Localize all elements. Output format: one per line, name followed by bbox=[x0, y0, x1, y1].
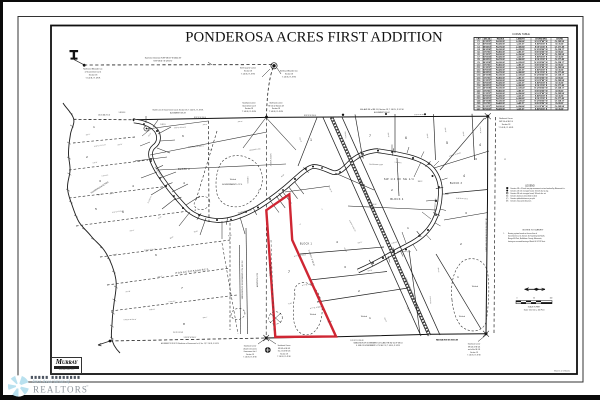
svg-text:T. 140 N., R. 49 W.: T. 140 N., R. 49 W. bbox=[498, 127, 514, 129]
svg-text:L=39.27': L=39.27' bbox=[517, 108, 525, 110]
svg-text:S 45°00'00" E: S 45°00'00" E bbox=[535, 56, 548, 59]
svg-text:PONDEROSA LOOP: PONDEROSA LOOP bbox=[369, 163, 383, 166]
svg-text:331.15': 331.15' bbox=[437, 268, 439, 274]
svg-text:1: 1 bbox=[93, 125, 95, 129]
svg-text:R=460.00': R=460.00' bbox=[496, 102, 505, 105]
svg-text:N 85°02' E 266.15': N 85°02' E 266.15' bbox=[144, 248, 157, 251]
svg-text:120.00': 120.00' bbox=[372, 204, 378, 206]
svg-text:Ch 195.54': Ch 195.54' bbox=[555, 53, 565, 56]
svg-text:R=425.00': R=425.00' bbox=[496, 43, 505, 46]
svg-text:Denotes 5/8 x 24 inch iron pip: Denotes 5/8 x 24 inch iron pipe monument… bbox=[511, 187, 566, 190]
svg-text:N 88° E: N 88° E bbox=[160, 124, 165, 126]
svg-text:82.00': 82.00' bbox=[228, 235, 233, 237]
svg-text:Northwest corner: Northwest corner bbox=[270, 102, 283, 105]
svg-text:DELTA: DELTA bbox=[484, 37, 491, 40]
svg-text:T. 140 N., R. 49 W.: T. 140 N., R. 49 W. bbox=[243, 357, 257, 359]
svg-text:2: 2 bbox=[86, 155, 88, 159]
svg-text:P O N D E R O S A A C R E S: P O N D E R O S A A C R E S bbox=[175, 268, 208, 275]
svg-text:6: 6 bbox=[155, 253, 157, 257]
svg-text:4: 4 bbox=[463, 174, 465, 178]
svg-text:5: 5 bbox=[446, 141, 448, 145]
svg-text:Section 18: Section 18 bbox=[502, 123, 511, 126]
svg-text:24°10'08": 24°10'08" bbox=[483, 87, 492, 90]
svg-text:N 12°30' W: N 12°30' W bbox=[147, 196, 152, 204]
svg-text:Ch 177.48': Ch 177.48' bbox=[555, 45, 565, 48]
svg-text:Section 18: Section 18 bbox=[244, 70, 252, 73]
svg-text:6: 6 bbox=[405, 136, 407, 140]
svg-text:3: 3 bbox=[99, 179, 101, 183]
svg-text:Range 49 West, Bethlehem Count: Range 49 West, Bethlehem County, Minneso… bbox=[508, 237, 542, 240]
svg-text:BLOCK 1: BLOCK 1 bbox=[300, 243, 313, 246]
svg-text:R=460.00': R=460.00' bbox=[496, 89, 505, 92]
svg-text:132.00': 132.00' bbox=[238, 121, 244, 123]
svg-text:Wetland: Wetland bbox=[459, 315, 465, 318]
svg-text:330.02': 330.02' bbox=[207, 149, 213, 151]
svg-text:24°10'08": 24°10'08" bbox=[483, 48, 492, 51]
svg-text:SE 1/4 of Section 18: SE 1/4 of Section 18 bbox=[268, 104, 283, 107]
svg-text:202.17': 202.17' bbox=[112, 254, 118, 257]
svg-text:CURVE TABLE: CURVE TABLE bbox=[512, 32, 530, 36]
svg-text:24°10'08": 24°10'08" bbox=[483, 74, 492, 77]
svg-text:Northeast Corner: Northeast Corner bbox=[499, 117, 513, 120]
svg-text:3: 3 bbox=[465, 211, 467, 215]
svg-text:3: 3 bbox=[344, 265, 346, 269]
svg-text:S 10°37'49" W: S 10°37'49" W bbox=[535, 79, 548, 82]
svg-text:S 89°58' W 1286.65': S 89°58' W 1286.65' bbox=[350, 340, 364, 342]
svg-text:134.15 (M) 271.00: 134.15 (M) 271.00 bbox=[98, 115, 110, 117]
svg-text:T. 140 N., R. 49 W.: T. 140 N., R. 49 W. bbox=[467, 355, 481, 357]
svg-text:Ch 195.54': Ch 195.54' bbox=[555, 79, 565, 82]
svg-text:N 89°58'41" W 1293.72': N 89°58'41" W 1293.72' bbox=[153, 61, 173, 63]
svg-text:60.00': 60.00' bbox=[281, 173, 286, 178]
svg-text:Ch 177.48': Ch 177.48' bbox=[555, 97, 565, 100]
svg-text:BLOCK 4: BLOCK 4 bbox=[390, 198, 404, 201]
svg-text:0: 0 bbox=[517, 298, 518, 300]
svg-text:R=460.00': R=460.00' bbox=[496, 50, 505, 53]
svg-text:165.00': 165.00' bbox=[444, 127, 446, 133]
svg-text:PONDEROSA ACRES FIRST ADDITION: PONDEROSA ACRES FIRST ADDITION bbox=[185, 30, 443, 46]
svg-text:Government Lot 3: Government Lot 3 bbox=[242, 104, 256, 107]
svg-text:S 88°12' E 169.00: S 88°12' E 169.00 bbox=[449, 152, 461, 157]
svg-text:N 84°18' E: N 84°18' E bbox=[169, 301, 176, 304]
svg-text:S 45°00'00" E: S 45°00'00" E bbox=[535, 107, 548, 110]
svg-text:5: 5 bbox=[322, 209, 323, 211]
svg-text:N 12°05'04" W: N 12°05'04" W bbox=[535, 61, 548, 64]
svg-text:having an assumed bearing of N: having an assumed bearing of North 00°01… bbox=[508, 240, 546, 243]
svg-text:Government Lot 4, Section 18,: Government Lot 4, Section 18, Township 1… bbox=[508, 235, 545, 238]
svg-text:S 45°00'00" E: S 45°00'00" E bbox=[535, 69, 548, 72]
svg-text:N 77°31' E 288.20: N 77°31' E 288.20 bbox=[310, 306, 322, 310]
svg-text:3: 3 bbox=[363, 183, 365, 187]
svg-text:Bearing system based on the ea: Bearing system based on the east line of bbox=[508, 232, 538, 235]
svg-text:S 88°40' E: S 88°40' E bbox=[119, 112, 126, 114]
svg-text:3: 3 bbox=[475, 157, 477, 161]
svg-text:Section 18: Section 18 bbox=[245, 107, 253, 110]
svg-text:1: 1 bbox=[310, 138, 312, 142]
svg-text:S 00°05' E: S 00°05' E bbox=[246, 176, 248, 183]
svg-text:N 89°54' W 330.00': N 89°54' W 330.00' bbox=[124, 319, 138, 321]
svg-text:North Quarter Corner: North Quarter Corner bbox=[240, 67, 256, 70]
svg-text:S 10°37'49" W: S 10°37'49" W bbox=[535, 40, 548, 43]
svg-text:MEANDER LINE: MEANDER LINE bbox=[249, 147, 261, 152]
svg-text:ALIGNMENT 660.00': ALIGNMENT 660.00' bbox=[374, 111, 390, 114]
svg-text:EAST LINE OF SW 1/4 OF SE 1/4,: EAST LINE OF SW 1/4 OF SE 1/4, SEC. 18 bbox=[485, 218, 488, 251]
svg-text:N 00°01' E: N 00°01' E bbox=[344, 131, 347, 138]
svg-text:T. 140 N., R. 49 W.: T. 140 N., R. 49 W. bbox=[277, 356, 291, 358]
svg-text:(R): (R) bbox=[506, 201, 509, 203]
svg-text:Northeast Meander Cor.: Northeast Meander Cor. bbox=[280, 70, 299, 73]
svg-text:N 89°58' E 120.11: N 89°58' E 120.11 bbox=[456, 198, 468, 200]
svg-text:S 10°37'49" W: S 10°37'49" W bbox=[535, 105, 548, 108]
svg-text:S 89°58' W 264.11': S 89°58' W 264.11' bbox=[184, 337, 197, 339]
svg-text:Ch 195.54': Ch 195.54' bbox=[555, 40, 565, 43]
svg-text:80.00': 80.00' bbox=[194, 230, 199, 233]
svg-text:R=425.00': R=425.00' bbox=[496, 56, 505, 59]
svg-text:North Line of Government Lot 4: North Line of Government Lot 4, Section … bbox=[153, 109, 204, 112]
svg-text:40th AVE SE of NE 1/4, Section: 40th AVE SE of NE 1/4, Section 18, T. 14… bbox=[360, 108, 404, 111]
svg-text:S 45°00'00" E: S 45°00'00" E bbox=[535, 94, 548, 97]
svg-text:R=425.00': R=425.00' bbox=[496, 69, 505, 72]
svg-text:1.: 1. bbox=[503, 233, 505, 235]
svg-text:134.06': 134.06' bbox=[367, 269, 373, 272]
svg-text:S 45°00'00" E: S 45°00'00" E bbox=[535, 43, 548, 46]
svg-text:Denotes measured distances: Denotes measured distances bbox=[511, 200, 532, 203]
svg-text:Sec. 18 of SE 1/4: Sec. 18 of SE 1/4 bbox=[278, 351, 291, 353]
svg-text:SW 1/4 of SE 1/4: SW 1/4 of SE 1/4 bbox=[278, 348, 290, 350]
svg-text:1: 1 bbox=[457, 275, 459, 279]
svg-text:90°00'00": 90°00'00" bbox=[483, 108, 492, 110]
svg-text:SW 1/4 of SE 1/4: SW 1/4 of SE 1/4 bbox=[499, 121, 513, 123]
svg-text:330.17': 330.17' bbox=[203, 317, 209, 319]
svg-text:T. 140 N., R. 49 W.: T. 140 N., R. 49 W. bbox=[85, 78, 101, 80]
svg-text:AUDITOR'S LOT 2: AUDITOR'S LOT 2 bbox=[256, 273, 259, 287]
svg-text:®: ® bbox=[86, 383, 89, 388]
svg-text:164.27': 164.27' bbox=[203, 124, 209, 126]
svg-text:BURLINGTON NORTHERN RAILROAD: BURLINGTON NORTHERN RAILROAD bbox=[359, 179, 377, 213]
svg-text:R=460.00': R=460.00' bbox=[496, 76, 505, 79]
svg-text:126.71': 126.71' bbox=[357, 242, 363, 245]
svg-text:33': 33' bbox=[504, 159, 507, 161]
svg-text:Section 18: Section 18 bbox=[280, 352, 288, 355]
svg-text:T. 140 N., R. 49 W.: T. 140 N., R. 49 W. bbox=[269, 111, 284, 113]
svg-text:R=425.00': R=425.00' bbox=[496, 107, 505, 110]
svg-text:2: 2 bbox=[358, 289, 360, 293]
svg-text:165.00': 165.00' bbox=[462, 131, 464, 137]
svg-text:RADIUS: RADIUS bbox=[497, 37, 505, 40]
svg-text:S 38°20' W 190.15': S 38°20' W 190.15' bbox=[348, 220, 356, 233]
svg-text:24°10'08": 24°10'08" bbox=[483, 61, 492, 64]
svg-text:S 10°37'49" W: S 10°37'49" W bbox=[535, 92, 548, 95]
svg-text:N 89°58' E 330.00: N 89°58' E 330.00 bbox=[194, 117, 206, 119]
svg-text:Section 18: Section 18 bbox=[470, 351, 478, 354]
svg-text:RAILROAD R/W SECTION LINE: RAILROAD R/W SECTION LINE bbox=[436, 339, 458, 342]
svg-text:5: 5 bbox=[95, 207, 97, 211]
svg-text:Southeast Corner: Southeast Corner bbox=[468, 343, 481, 346]
svg-text:Wetland: Wetland bbox=[230, 178, 236, 181]
svg-text:R=425.00': R=425.00' bbox=[496, 94, 505, 97]
svg-text:N 87°44' E: N 87°44' E bbox=[101, 174, 108, 177]
svg-text:Scale: One Inch = 100 Feet: Scale: One Inch = 100 Feet bbox=[524, 309, 545, 312]
svg-text:REALTORS: REALTORS bbox=[33, 385, 88, 395]
svg-text:Sheet 1 of 1 Sheets: Sheet 1 of 1 Sheets bbox=[554, 370, 570, 373]
svg-text:82.15': 82.15' bbox=[148, 132, 152, 137]
svg-text:208.07': 208.07' bbox=[383, 317, 387, 323]
svg-text:Section 18: Section 18 bbox=[246, 353, 254, 356]
svg-text:Ch 195.54': Ch 195.54' bbox=[555, 66, 565, 69]
svg-text:Wetland: Wetland bbox=[310, 313, 316, 316]
svg-text:(South 1/4 Corner): (South 1/4 Corner) bbox=[243, 347, 257, 350]
svg-text:Government Lot 4: Government Lot 4 bbox=[244, 350, 257, 353]
svg-text:S 89°58' E: S 89°58' E bbox=[391, 241, 398, 245]
svg-text:Ch 177.48': Ch 177.48' bbox=[555, 71, 565, 74]
svg-text:and of the SE 1/4: and of the SE 1/4 bbox=[468, 348, 480, 351]
svg-text:165.00': 165.00' bbox=[426, 133, 428, 139]
svg-text:of Government Lot 4: of Government Lot 4 bbox=[85, 71, 101, 74]
svg-text:66': 66' bbox=[494, 174, 497, 176]
svg-text:BLOCK 2: BLOCK 2 bbox=[178, 169, 190, 171]
svg-text:4: 4 bbox=[300, 224, 301, 226]
svg-text:50: 50 bbox=[533, 298, 535, 300]
svg-text:N 00°01'19" W: N 00°01'19" W bbox=[270, 264, 272, 275]
svg-text:(P): (P) bbox=[506, 198, 509, 200]
svg-text:N 12°05'04" W: N 12°05'04" W bbox=[535, 87, 548, 90]
svg-text:(M): (M) bbox=[506, 195, 509, 197]
svg-text:Ch 177.48': Ch 177.48' bbox=[555, 84, 565, 87]
svg-text:7: 7 bbox=[181, 286, 183, 290]
svg-text:4: 4 bbox=[479, 143, 481, 147]
svg-text:252.12': 252.12' bbox=[130, 230, 136, 233]
svg-text:182.11': 182.11' bbox=[86, 134, 92, 137]
svg-text:SUBDIVISION OF GOVERNMENT LOT: SUBDIVISION OF GOVERNMENT LOT 4, SEC. 18 bbox=[242, 261, 244, 300]
svg-text:75.00': 75.00' bbox=[158, 216, 163, 220]
svg-text:N 89°58' E 264.00: N 89°58' E 264.00 bbox=[304, 115, 316, 117]
svg-text:Ch 195.54': Ch 195.54' bbox=[555, 105, 565, 108]
svg-text:NOTES TO SURVEY: NOTES TO SURVEY bbox=[523, 229, 544, 231]
svg-text:212.15': 212.15' bbox=[117, 144, 123, 147]
svg-text:T. 140 N., R. 49 W.: T. 140 N., R. 49 W. bbox=[241, 74, 256, 76]
svg-text:280.07': 280.07' bbox=[158, 276, 164, 279]
svg-text:S 38° W: S 38° W bbox=[328, 187, 333, 193]
svg-text:R=460.00': R=460.00' bbox=[496, 63, 505, 66]
svg-text:Section 18: Section 18 bbox=[272, 107, 280, 110]
svg-text:Wetland: Wetland bbox=[361, 315, 367, 318]
svg-text:4: 4 bbox=[336, 240, 338, 244]
svg-text:N 88°12' E 212.07': N 88°12' E 212.07' bbox=[94, 144, 107, 148]
svg-text:ALIGNMENT 587.28': ALIGNMENT 587.28' bbox=[170, 112, 186, 115]
svg-text:2: 2 bbox=[391, 188, 393, 192]
svg-text:100: 100 bbox=[550, 298, 553, 300]
svg-text:S 45°00'00" E: S 45°00'00" E bbox=[535, 82, 548, 85]
svg-text:SW 1/4 of SE 1/4: SW 1/4 of SE 1/4 bbox=[468, 346, 480, 348]
svg-text:Ch 177.48': Ch 177.48' bbox=[555, 58, 565, 61]
svg-text:C27: C27 bbox=[477, 108, 481, 110]
svg-text:S 10°37'49" W: S 10°37'49" W bbox=[535, 53, 548, 56]
svg-text:T. 140 N., R. 49 W.: T. 140 N., R. 49 W. bbox=[242, 111, 257, 113]
svg-text:N 12°05'04" W: N 12°05'04" W bbox=[535, 100, 548, 103]
svg-text:Section 18: Section 18 bbox=[285, 73, 293, 76]
svg-text:24°10'08": 24°10'08" bbox=[483, 100, 492, 103]
svg-text:Wetland: Wetland bbox=[472, 285, 478, 288]
svg-text:1: 1 bbox=[407, 226, 409, 230]
svg-text:2: 2 bbox=[460, 242, 462, 246]
svg-text:432.15': 432.15' bbox=[298, 137, 302, 143]
svg-text:217.00': 217.00' bbox=[125, 291, 131, 293]
svg-text:196.00': 196.00' bbox=[93, 162, 99, 165]
svg-text:7: 7 bbox=[288, 270, 290, 274]
svg-text:Section 18: Section 18 bbox=[89, 74, 98, 77]
svg-text:N 89° W: N 89° W bbox=[149, 309, 155, 311]
svg-text:Southeast Corner: Southeast Corner bbox=[244, 345, 257, 348]
svg-text:ALIGNMENT S 88°40' W Subdiv: ALIGNMENT S 88°40' W Subdivision of Gove… bbox=[161, 342, 220, 345]
svg-text:Ch 35.36': Ch 35.36' bbox=[555, 108, 564, 110]
svg-text:88.07': 88.07' bbox=[170, 236, 175, 240]
svg-text:S. LINE OF GOVERNMENT LOT 4 SE: S. LINE OF GOVERNMENT LOT 4 SEC. 18, T. … bbox=[356, 345, 401, 347]
svg-text:S 88°40' E 264.12': S 88°40' E 264.12' bbox=[174, 127, 187, 130]
svg-text:75.00': 75.00' bbox=[288, 303, 293, 306]
svg-text:SCALE IN FEET: SCALE IN FEET bbox=[528, 306, 540, 309]
svg-text:N 00°01' W 662.91': N 00°01' W 662.91' bbox=[269, 154, 271, 168]
svg-text:S 89°54' E 310.12: S 89°54' E 310.12 bbox=[414, 114, 426, 116]
svg-text:Said Line Direction N 89°58'4: Said Line Direction N 89°58'41" W 2640.3… bbox=[145, 56, 182, 59]
svg-text:152.15' 137.08': 152.15' 137.08' bbox=[173, 332, 184, 334]
svg-text:BLOCK 3: BLOCK 3 bbox=[450, 182, 463, 185]
svg-text:N 12°05'04" W: N 12°05'04" W bbox=[535, 74, 548, 77]
svg-text:8: 8 bbox=[183, 322, 185, 326]
svg-text:4: 4 bbox=[183, 181, 185, 185]
svg-text:S 00°01' W: S 00°01' W bbox=[429, 296, 431, 304]
svg-text:S 10°37'49" W: S 10°37'49" W bbox=[535, 66, 548, 69]
svg-text:Southwest corner: Southwest corner bbox=[242, 102, 256, 105]
svg-text:1: 1 bbox=[369, 316, 371, 320]
svg-text:LEGEND: LEGEND bbox=[525, 185, 535, 187]
svg-text:R=425.00': R=425.00' bbox=[496, 82, 505, 85]
svg-text:Northwest Meander Cor.: Northwest Meander Cor. bbox=[83, 68, 103, 71]
svg-text:S 0°01' W: S 0°01' W bbox=[479, 127, 482, 134]
svg-text:S 89°58' E: S 89°58' E bbox=[394, 162, 401, 164]
svg-text:GOVERNMENT LOT 4: GOVERNMENT LOT 4 bbox=[222, 184, 243, 186]
svg-text:SW 1/4 OF SE 1/4: SW 1/4 OF SE 1/4 bbox=[384, 178, 414, 181]
svg-text:N 12°05'04" W: N 12°05'04" W bbox=[535, 48, 548, 51]
svg-text:S 16°59'57" W 362.26': S 16°59'57" W 362.26' bbox=[307, 250, 315, 267]
svg-text:SHERWOOD LOT 6: SHERWOOD LOT 6 bbox=[188, 145, 203, 148]
svg-text:134.15': 134.15' bbox=[418, 181, 424, 183]
svg-text:6: 6 bbox=[182, 134, 184, 138]
svg-text:7: 7 bbox=[369, 134, 371, 138]
svg-text:4: 4 bbox=[132, 184, 134, 188]
svg-text:Southwest Corner: Southwest Corner bbox=[278, 344, 291, 347]
svg-text:Ch 195.54': Ch 195.54' bbox=[555, 92, 565, 95]
svg-text:T. 140 N., R. 49 W.: T. 140 N., R. 49 W. bbox=[282, 77, 297, 79]
svg-text:165.00': 165.00' bbox=[387, 132, 389, 138]
